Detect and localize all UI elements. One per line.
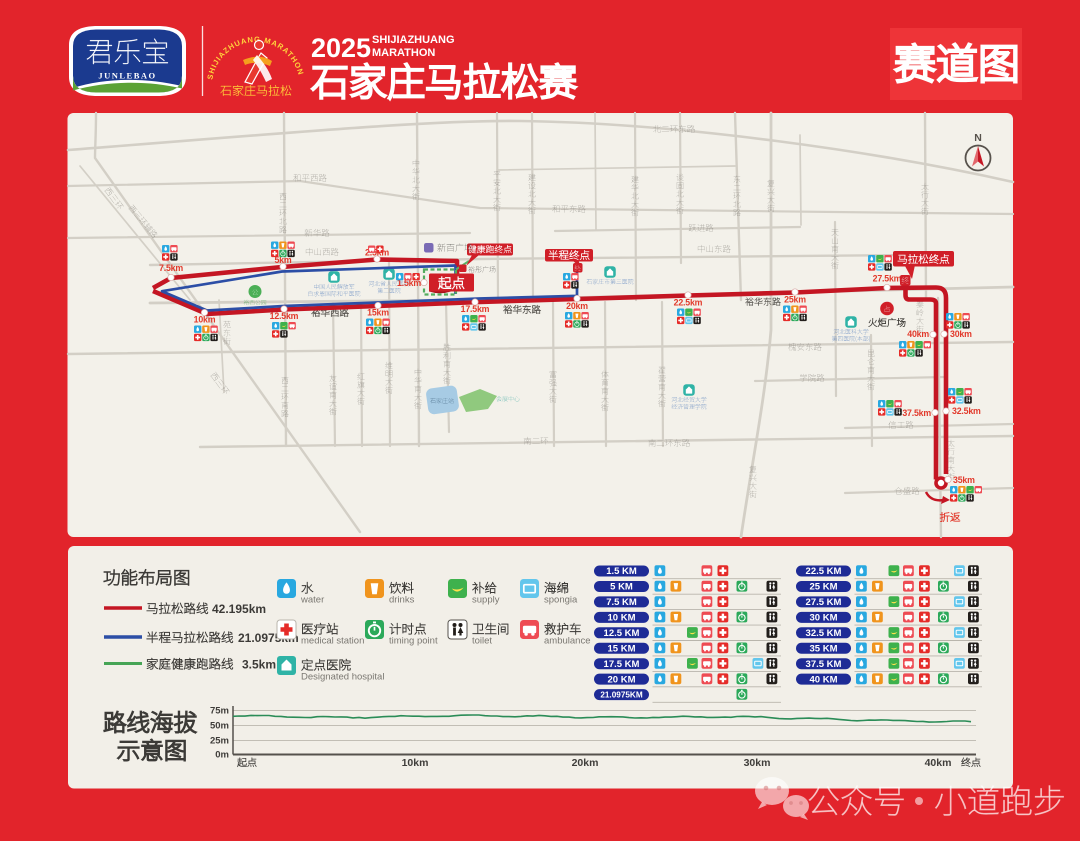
svg-text:17.5 KM: 17.5 KM bbox=[604, 659, 640, 670]
svg-text:22.5km: 22.5km bbox=[674, 298, 703, 308]
svg-text:water: water bbox=[300, 595, 324, 606]
svg-text:drinks: drinks bbox=[389, 595, 415, 606]
svg-text:25km: 25km bbox=[784, 295, 806, 305]
svg-text:ambulance: ambulance bbox=[544, 636, 590, 647]
svg-text:17.5km: 17.5km bbox=[461, 304, 490, 314]
svg-text:15km: 15km bbox=[367, 308, 389, 318]
svg-text:spongia: spongia bbox=[544, 595, 578, 606]
svg-text:2025: 2025 bbox=[311, 33, 371, 63]
svg-text:32.5km: 32.5km bbox=[952, 406, 981, 416]
svg-text:1.5 KM: 1.5 KM bbox=[606, 566, 637, 577]
svg-text:40km: 40km bbox=[907, 329, 929, 339]
svg-text:12.5 KM: 12.5 KM bbox=[604, 628, 640, 639]
svg-text:Designated hospital: Designated hospital bbox=[301, 672, 384, 683]
svg-text:50m: 50m bbox=[210, 721, 229, 732]
svg-text:27.5km: 27.5km bbox=[873, 274, 902, 284]
svg-text:75m: 75m bbox=[210, 706, 229, 717]
svg-text:25m: 25m bbox=[210, 736, 229, 747]
svg-text:27.5 KM: 27.5 KM bbox=[806, 597, 842, 608]
svg-text:40 KM: 40 KM bbox=[810, 674, 838, 685]
svg-text:30 KM: 30 KM bbox=[810, 612, 838, 623]
svg-text:25 KM: 25 KM bbox=[810, 582, 838, 593]
svg-text:10km: 10km bbox=[402, 757, 429, 769]
svg-text:7.5km: 7.5km bbox=[159, 263, 183, 273]
svg-text:N: N bbox=[974, 132, 982, 144]
svg-text:JUNLEBAO: JUNLEBAO bbox=[98, 71, 156, 81]
svg-text:35 KM: 35 KM bbox=[810, 643, 838, 654]
svg-text:supply: supply bbox=[472, 595, 500, 606]
svg-text:SHIJIAZHUANG: SHIJIAZHUANG bbox=[372, 34, 455, 46]
svg-text:timing point: timing point bbox=[389, 636, 438, 647]
svg-text:20km: 20km bbox=[566, 301, 588, 311]
svg-text:32.5 KM: 32.5 KM bbox=[806, 628, 842, 639]
svg-text:medical station: medical station bbox=[301, 636, 364, 647]
svg-text:20km: 20km bbox=[572, 757, 599, 769]
svg-text:toilet: toilet bbox=[472, 636, 492, 647]
svg-text:42.195km: 42.195km bbox=[212, 602, 266, 616]
svg-text:20 KM: 20 KM bbox=[608, 674, 636, 685]
svg-text:10 KM: 10 KM bbox=[608, 612, 636, 623]
svg-text:22.5 KM: 22.5 KM bbox=[806, 566, 842, 577]
svg-text:10km: 10km bbox=[194, 315, 216, 325]
svg-text:21.0975KM: 21.0975KM bbox=[600, 691, 643, 700]
svg-text:15 KM: 15 KM bbox=[608, 643, 636, 654]
svg-text:3.5km: 3.5km bbox=[242, 658, 276, 672]
svg-text:30km: 30km bbox=[950, 329, 972, 339]
svg-text:30km: 30km bbox=[744, 757, 771, 769]
svg-text:5 KM: 5 KM bbox=[610, 582, 633, 593]
svg-text:12.5km: 12.5km bbox=[270, 311, 299, 321]
svg-text:35km: 35km bbox=[953, 475, 975, 485]
svg-text:37.5km: 37.5km bbox=[902, 408, 931, 418]
svg-text:0m: 0m bbox=[215, 750, 229, 761]
svg-text:40km: 40km bbox=[925, 757, 952, 769]
svg-text:37.5 KM: 37.5 KM bbox=[806, 659, 842, 670]
svg-text:MARATHON: MARATHON bbox=[372, 47, 435, 59]
svg-text:7.5 KM: 7.5 KM bbox=[606, 597, 637, 608]
